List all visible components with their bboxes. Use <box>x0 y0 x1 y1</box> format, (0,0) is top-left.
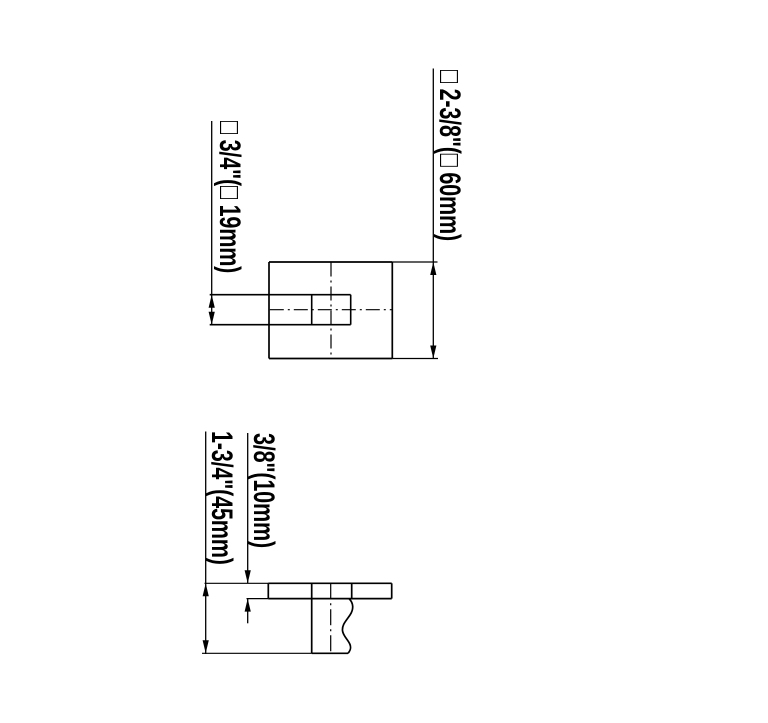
technical-drawing <box>0 0 768 723</box>
arrow-down-icon <box>245 570 251 583</box>
dimension-label-plate-size: □ 2-3/8"(□ 60mm) <box>434 70 464 241</box>
arrow-down-icon <box>430 346 436 359</box>
arrow-up-icon <box>245 599 251 612</box>
center-lines <box>270 263 393 359</box>
arrow-down-icon <box>203 640 209 653</box>
arrow-down-icon <box>209 312 215 325</box>
arrow-up-icon <box>209 295 215 308</box>
plate-profile <box>268 583 391 598</box>
arrow-up-icon <box>430 262 436 275</box>
dimension-label-arm-width: □ 3/4"(□ 19mm) <box>214 121 244 273</box>
extension-lines <box>202 583 312 653</box>
dimension-label-overall-depth: 1-3/4"(45mm) <box>206 431 236 565</box>
break-line <box>342 599 352 654</box>
drawing-canvas: □ 3/4"(□ 19mm) □ 2-3/8"(□ 60mm) 3/8"(10m… <box>0 0 768 723</box>
arrow-up-icon <box>203 583 209 596</box>
extension-lines <box>392 262 438 359</box>
dimension-label-plate-thickness: 3/8"(10mm) <box>248 433 278 548</box>
stem-profile <box>312 583 353 653</box>
